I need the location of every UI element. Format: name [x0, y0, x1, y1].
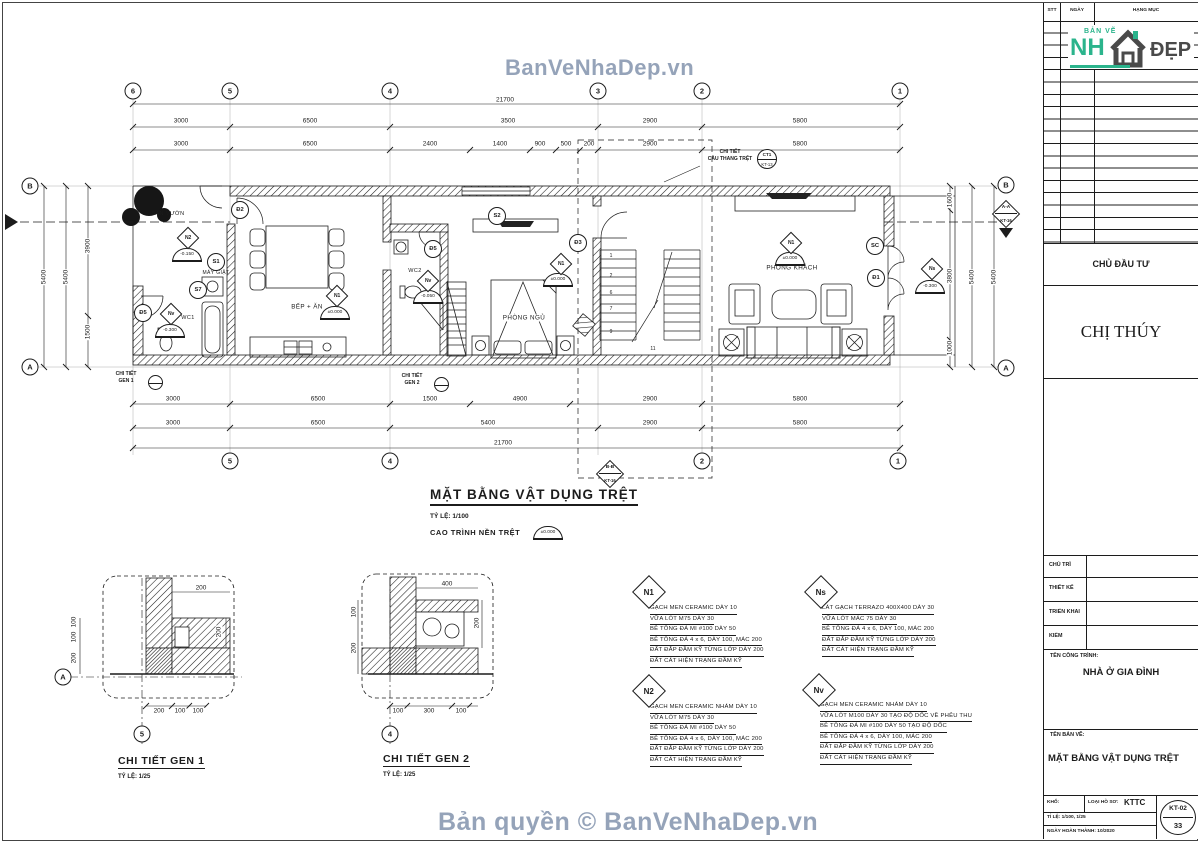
grid-bubble-bottom-2: 2: [694, 453, 711, 470]
role-divider: [1086, 625, 1087, 649]
door-tag-d5-wc2: Đ5: [424, 240, 442, 258]
grid-label: 4: [388, 457, 392, 466]
finish-code: N1: [558, 261, 564, 267]
note-line: LÁT GẠCH TERRAZO 400X400 DÀY 30: [822, 604, 934, 615]
role-label: KIỂM: [1049, 633, 1062, 639]
logo-main-text: NH: [1070, 34, 1105, 62]
door-tag-d2: Đ2: [231, 201, 249, 219]
paper-row: KHỔ: LOẠI HỒ SƠ: KTTC: [1044, 795, 1156, 813]
stair-number: 7: [610, 306, 613, 312]
dossier-value: KTTC: [1124, 798, 1145, 807]
det1-scale: TỶ LỆ: 1/25: [118, 774, 150, 780]
det2-dim-top: 400: [441, 581, 454, 588]
divider: [758, 159, 776, 160]
tag-label: SC: [871, 243, 879, 249]
drawing-label: TÊN BẢN VẼ:: [1050, 732, 1084, 738]
tag-label: Đ5: [139, 310, 146, 316]
tag-label: Đ2: [236, 207, 243, 213]
note-line: VỮA LÓT M75 DÀY 30: [650, 714, 714, 725]
door-tag-d5-wc1: Đ5: [134, 304, 152, 322]
det2-dim-left: 200: [351, 642, 358, 655]
grid-bubble-left-B: B: [22, 178, 39, 195]
det1-dim-left: 200: [71, 652, 78, 665]
room-label-phong-ngu: PHÒNG NGỦ: [503, 315, 545, 322]
tag-label: Đ5: [429, 246, 436, 252]
dim-bottom-inner: 5800: [792, 396, 808, 403]
section-marker-b-b: B-B KT-16: [596, 460, 624, 488]
detail-gen2-drawing: [358, 574, 493, 744]
finish-code: N1: [334, 293, 340, 299]
tag-label: Đ3: [574, 240, 581, 246]
dim-top-inner: 2900: [642, 141, 658, 148]
det1-axis-left-bubble: A: [55, 669, 72, 686]
stair-number: 2: [610, 273, 613, 279]
note-line: GẠCH MEN CERAMIC DÀY 10: [650, 604, 737, 615]
note-line: VỮA LÓT MÁC 75 DÀY 30: [822, 615, 897, 626]
callout-line: CẦU THANG TRỆT: [708, 156, 752, 162]
det1-dim-bottom: 100: [174, 708, 187, 715]
dim-bottom-inner: 1500: [422, 396, 438, 403]
gen1-plan-callout: CHI TIẾT GEN 1: [106, 371, 146, 384]
note-line: BÊ TÔNG ĐÁ 4 x 6, DÀY 100, MÁC 200: [820, 733, 932, 744]
dim-top-mid: 2900: [642, 118, 658, 125]
tag-label: S1: [212, 259, 219, 265]
det2-axis-bottom-bubble: 4: [382, 726, 399, 743]
finish-code: N2: [185, 235, 191, 241]
stair-number: 1: [610, 253, 613, 259]
dim-bottom-mid: 2900: [642, 420, 658, 427]
dim-top-inner: 1400: [492, 141, 508, 148]
note-line: BÊ TÔNG ĐÁ 4 x 6, DÀY 100, MÁC 200: [650, 735, 762, 746]
section-marker-a-a: A-A KT-16: [992, 200, 1020, 228]
role-label: TRIỂN KHAI: [1049, 609, 1080, 615]
plan-stairs: [600, 250, 700, 342]
grid-label: 1: [896, 457, 900, 466]
det2-dim-left: 100: [351, 606, 358, 619]
room-label-bep-an: BẾP + ĂN: [291, 304, 323, 311]
plan-floor-level-label: CAO TRÌNH NỀN TRỆT: [430, 528, 520, 537]
ref-bottom: KT-13: [758, 162, 776, 167]
grid-label: B: [27, 182, 32, 191]
grid-bubble-top-6: 6: [125, 83, 142, 100]
dossier-label: LOẠI HỒ SƠ:: [1088, 800, 1118, 805]
finish-code: Nv: [425, 278, 431, 284]
note-line: ĐẤT CÁT HIỆN TRẠNG ĐẦM KỸ: [650, 756, 742, 767]
dim-top-inner: 2400: [422, 141, 438, 148]
det1-dim-bottom: 100: [192, 708, 205, 715]
det1-dim-left: 100: [71, 616, 78, 629]
gen2-ref-circle: [434, 377, 449, 392]
scale-line: TỈ LỆ: 1/100, 1/25: [1047, 815, 1086, 820]
note-block-ns: LÁT GẠCH TERRAZO 400X400 DÀY 30 VỮA LÓT …: [822, 604, 936, 657]
dim-top-mid: 6500: [302, 118, 318, 125]
note-block-nv: GẠCH MEN CERAMIC NHÁM DÀY 10 VỮA LÓT M10…: [820, 701, 972, 765]
dim-right: 1000: [947, 340, 954, 356]
note-block-n2: GẠCH MEN CERAMIC NHÁM DÀY 10 VỮA LÓT M75…: [650, 703, 764, 767]
dim-top-inner: 5800: [792, 141, 808, 148]
role-row-trien-khai: TRIỂN KHAI: [1044, 601, 1198, 626]
note-line: BÊ TÔNG ĐÁ MI #100 DÀY 50: [650, 625, 736, 636]
room-label-wc1: WC1: [181, 315, 194, 321]
investor-label: CHỦ ĐẦU TƯ: [1093, 259, 1150, 269]
sheet-number-ellipse: KT-02 33: [1160, 800, 1196, 835]
window-tag-s1: S1: [207, 253, 225, 271]
grid-label: 1: [898, 87, 902, 96]
paper-label: KHỔ:: [1047, 800, 1059, 805]
logo-underline: [1070, 65, 1130, 68]
grid-bubble-bottom-4: 4: [382, 453, 399, 470]
note-line: ĐẤT CÁT HIỆN TRẠNG ĐẦM KỸ: [820, 754, 912, 765]
window-tag-s7: S7: [189, 281, 207, 299]
revision-col-stt: STT: [1044, 8, 1060, 13]
room-label-san-vuon: SÂN VƯỜN: [151, 211, 184, 217]
sheet-no: 33: [1161, 821, 1195, 830]
callout-line: CHI TIẾT: [402, 373, 423, 379]
divider: [435, 385, 448, 386]
dim-total-top: 21700: [495, 97, 515, 104]
paper-divider: [1084, 795, 1085, 812]
note-line: ĐẤT ĐẮP ĐẦM KỸ TỪNG LỚP DÀY 200: [822, 636, 936, 647]
drawing-name-cell: TÊN BẢN VẼ: MẶT BẰNG VẬT DỤNG TRỆT: [1044, 729, 1198, 796]
project-name: NHÀ Ở GIA ĐÌNH: [1044, 667, 1198, 678]
stair-detail-callout: CHI TIẾT CẦU THANG TRỆT: [703, 149, 757, 162]
grid-label: 5: [228, 87, 232, 96]
dim-top-inner: 900: [534, 141, 547, 148]
dim-right: 5400: [991, 269, 998, 285]
company-logo: BẢN VẼ NH ĐẸP: [1068, 25, 1194, 69]
det1-title: CHI TIẾT GEN 1: [118, 755, 205, 769]
role-row-thiet-ke: THIẾT KẾ: [1044, 577, 1198, 602]
investor-header-cell: CHỦ ĐẦU TƯ: [1044, 243, 1198, 286]
dim-bottom-mid: 5400: [480, 420, 496, 427]
dim-top-mid: 3000: [173, 118, 189, 125]
note-line: ĐẤT ĐẮP ĐẦM KỸ TỪNG LỚP DÀY 200: [820, 743, 934, 754]
revision-table: STT NGÀY HẠNG MỤC BẢN VẼ NH ĐẸP: [1044, 3, 1198, 244]
revision-col-hangmuc: HẠNG MỤC: [1094, 8, 1198, 13]
empty-cell: [1044, 378, 1198, 556]
callout-line: CHI TIẾT: [720, 149, 741, 155]
grid-label: 6: [131, 87, 135, 96]
ref-top: CT1: [758, 152, 776, 157]
det1-dim-top: 200: [195, 585, 208, 592]
note-line: ĐẤT ĐẮP ĐẦM KỸ TỪNG LỚP DÀY 200: [650, 745, 764, 756]
note-block-n1: GẠCH MEN CERAMIC DÀY 10 VỮA LÓT M75 DÀY …: [650, 604, 764, 668]
door-tag-d1: Đ1: [867, 269, 885, 287]
grid-bubble-top-4: 4: [382, 83, 399, 100]
note-line: GẠCH MEN CERAMIC NHÁM DÀY 10: [820, 701, 927, 712]
note-line: VỮA LÓT M75 DÀY 30: [650, 615, 714, 626]
stair-detail-ref-circle: CT1 KT-13: [757, 149, 777, 169]
det2-dim-bottom: 100: [455, 708, 468, 715]
note-line: BÊ TÔNG ĐÁ 4 x 6, DÀY 100, MÁC 200: [822, 625, 934, 636]
callout-line: GEN 2: [404, 380, 419, 386]
det2-dim-bottom: 300: [423, 708, 436, 715]
finish-code: N1: [788, 240, 794, 246]
grid-bubble-left-A: A: [22, 359, 39, 376]
tag-label: S2: [493, 213, 500, 219]
grid-label: 4: [388, 87, 392, 96]
det1-axis-bottom-bubble: 5: [134, 726, 151, 743]
role-divider: [1086, 577, 1087, 601]
dim-top-inner: 6500: [302, 141, 318, 148]
revision-col-ngay: NGÀY: [1060, 8, 1094, 13]
date-row: NGÀY HOÀN THÀNH: 10/2020: [1044, 825, 1156, 839]
note-line: ĐẤT CÁT HIỆN TRẠNG ĐẦM KỸ: [650, 657, 742, 668]
grid-bubble-right-B: B: [998, 177, 1015, 194]
title-block-panel: STT NGÀY HẠNG MỤC BẢN VẼ NH ĐẸP CHỦ ĐẦU …: [1043, 3, 1198, 839]
dim-bottom-mid: 5800: [792, 420, 808, 427]
revision-divider-1: [1060, 3, 1061, 243]
det2-dim-right: 200: [474, 617, 481, 630]
note-code: N2: [644, 686, 654, 695]
grid-bubble-top-2: 2: [694, 83, 711, 100]
det2-dim-bottom: 100: [392, 708, 405, 715]
dim-bottom-mid: 6500: [310, 420, 326, 427]
section-arrow-left-icon: [5, 214, 18, 230]
role-divider: [1086, 601, 1087, 625]
dim-left: 5400: [41, 269, 48, 285]
gen2-plan-callout: CHI TIẾT GEN 2: [392, 373, 432, 386]
role-divider: [1086, 555, 1087, 577]
divider: [995, 213, 1017, 214]
dim-right: 5400: [969, 269, 976, 285]
grid-bubble-top-1: 1: [892, 83, 909, 100]
dim-right: 3800: [947, 268, 954, 284]
det2-title: CHI TIẾT GEN 2: [383, 753, 470, 767]
project-label: TÊN CÔNG TRÌNH:: [1050, 653, 1098, 659]
divider: [599, 473, 621, 474]
detail-gen1-drawing: [70, 576, 242, 744]
note-line: BÊ TÔNG ĐÁ MI #100 DÀY 50 TẠO ĐỘ DỐC: [820, 722, 947, 733]
tag-label: S7: [194, 287, 201, 293]
sheet-circle-cell: KT-02 33: [1156, 795, 1199, 839]
dim-left: 3900: [85, 238, 92, 254]
section-name: B-B: [596, 465, 624, 470]
sheet-info-strip: KT-02 33 KHỔ: LOẠI HỒ SƠ: KTTC TỈ LỆ: 1/…: [1044, 795, 1198, 839]
grid-label: 3: [596, 87, 600, 96]
note-line: ĐẤT ĐẮP ĐẦM KỸ TỪNG LỚP DÀY 200: [650, 646, 764, 657]
section-name: A-A: [992, 205, 1020, 210]
dim-top-inner: 200: [583, 141, 596, 148]
note-code: Ns: [816, 587, 826, 596]
grid-bubble-bottom-1: 1: [890, 453, 907, 470]
scale-row: TỈ LỆ: 1/100, 1/25: [1044, 812, 1156, 826]
drawing-name: MẶT BẰNG VẬT DỤNG TRỆT: [1048, 753, 1194, 764]
dim-top-mid: 3500: [500, 118, 516, 125]
dim-top-mid: 5800: [792, 118, 808, 125]
gen1-ref-circle: [148, 375, 163, 390]
watermark-top: BanVeNhaDep.vn: [505, 55, 694, 81]
dim-top-inner: 500: [560, 141, 573, 148]
dim-top-inner: 3000: [173, 141, 189, 148]
note-code: Nv: [814, 685, 824, 694]
dim-right: 1600: [947, 192, 954, 208]
grid-label: 4: [388, 730, 392, 739]
finish-code: Ns: [929, 266, 935, 272]
logo-suffix-text: ĐẸP: [1150, 39, 1191, 62]
det1-dim-bottom: 200: [153, 708, 166, 715]
section-arrow-a-icon: [999, 228, 1013, 238]
note-line: BÊ TÔNG ĐÁ MI #100 DÀY 50: [650, 724, 736, 735]
project-cell: TÊN CÔNG TRÌNH: NHÀ Ở GIA ĐÌNH: [1044, 649, 1198, 730]
note-line: VỮA LÓT M100 DÀY 30 TẠO ĐỘ DỐC VỀ PHỄU T…: [820, 712, 972, 723]
grid-label: 5: [140, 730, 144, 739]
role-label: THIẾT KẾ: [1049, 585, 1074, 591]
watermark-bottom: Bản quyền © BanVeNhaDep.vn: [438, 808, 818, 837]
grid-label: 2: [700, 457, 704, 466]
logo-house-icon: [1106, 27, 1150, 69]
grid-bubble-right-A: A: [998, 360, 1015, 377]
note-line: BÊ TÔNG ĐÁ 4 x 6, DÀY 100, MÁC 200: [650, 636, 762, 647]
divider: [1163, 817, 1193, 818]
plan-title: MẶT BẰNG VẬT DỤNG TRỆT: [430, 487, 638, 506]
section-sheet: KT-16: [596, 478, 624, 483]
callout-line: GEN 1: [118, 378, 133, 384]
grid-label: B: [1003, 181, 1008, 190]
callout-line: CHI TIẾT: [116, 371, 137, 377]
dim-bottom-inner: 2900: [642, 396, 658, 403]
finish-code: Nv: [168, 311, 174, 317]
stair-number: 6: [610, 290, 613, 296]
det2-scale: TỶ LỆ: 1/25: [383, 772, 415, 778]
role-row-chu-tri: CHỦ TRÌ: [1044, 555, 1198, 578]
grid-bubble-bottom-5: 5: [222, 453, 239, 470]
dim-bottom-inner: 6500: [310, 396, 326, 403]
grid-label: 5: [228, 457, 232, 466]
dim-bottom-inner: 4900: [512, 396, 528, 403]
drawing-sheet: { "watermarks": { "top": "BanVeNhaDep.vn…: [0, 0, 1200, 843]
dim-bottom-inner: 3000: [165, 396, 181, 403]
section-sheet: KT-16: [992, 218, 1020, 223]
investor-name-cell: CHỊ THÚY: [1044, 285, 1198, 379]
role-row-kiem: KIỂM: [1044, 625, 1198, 650]
grid-label: A: [1003, 364, 1008, 373]
stair-number: 9: [610, 329, 613, 335]
grid-label: A: [27, 363, 32, 372]
dim-bottom-mid: 3000: [165, 420, 181, 427]
grid-bubble-top-5: 5: [222, 83, 239, 100]
note-line: ĐẤT CÁT HIỆN TRẠNG ĐẦM KỸ: [822, 646, 914, 657]
dim-left: 1500: [85, 324, 92, 340]
grid-label: A: [60, 673, 65, 682]
door-tag-d3: Đ3: [569, 234, 587, 252]
grid-bubble-top-3: 3: [590, 83, 607, 100]
note-line: GẠCH MEN CERAMIC NHÁM DÀY 10: [650, 703, 757, 714]
role-label: CHỦ TRÌ: [1049, 562, 1071, 568]
divider: [149, 383, 162, 384]
window-tag-s2: S2: [488, 207, 506, 225]
date-line: NGÀY HOÀN THÀNH: 10/2020: [1047, 829, 1115, 834]
sheet-code: KT-02: [1161, 805, 1195, 812]
note-code: N1: [644, 587, 654, 596]
tag-label: Đ1: [872, 275, 879, 281]
door-tag-sc: SC: [866, 237, 884, 255]
dim-total-bottom: 21700: [493, 440, 513, 447]
grid-label: 2: [700, 87, 704, 96]
stair-number: 11: [650, 346, 655, 352]
det1-dim-right: 200: [216, 626, 223, 639]
investor-name: CHỊ THÚY: [1081, 322, 1161, 342]
det1-dim-left: 100: [71, 631, 78, 644]
plan-scale: TỶ LỆ: 1/100: [430, 513, 469, 520]
dim-left: 5400: [63, 269, 70, 285]
room-label-wc2: WC2: [408, 268, 421, 274]
